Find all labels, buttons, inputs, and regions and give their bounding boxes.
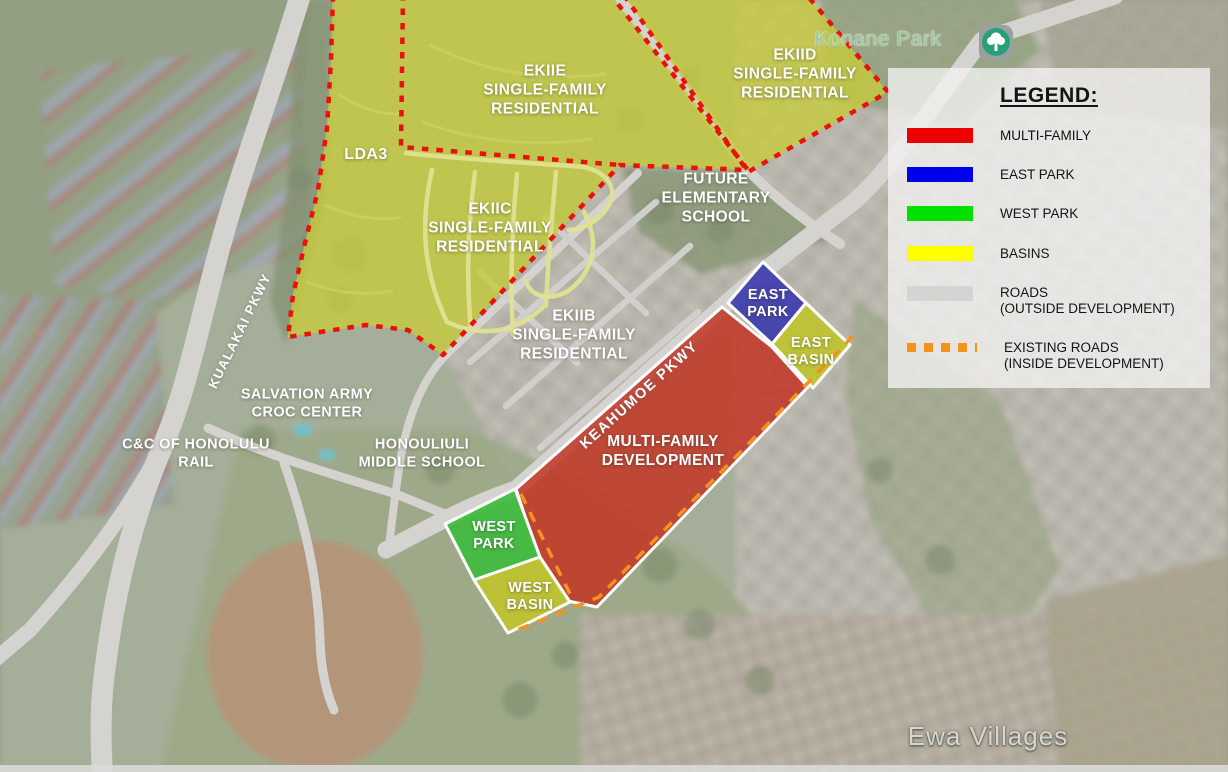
konane-park-icon: [979, 25, 1013, 61]
legend-row-east-park: EAST PARK: [907, 167, 1210, 183]
existing-roads-dashed-swatch: [907, 343, 977, 352]
legend-row-existing-roads: EXISTING ROADS (INSIDE DEVELOPMENT): [907, 340, 1210, 372]
bottom-edge-strip: [0, 765, 1228, 772]
legend-label: BASINS: [1000, 246, 1050, 262]
legend-label: ROADS (OUTSIDE DEVELOPMENT): [1000, 285, 1175, 317]
legend-row-multi-family: MULTI-FAMILY: [907, 128, 1210, 144]
legend-label: WEST PARK: [1000, 206, 1078, 222]
legend-row-west-park: WEST PARK: [907, 206, 1210, 222]
legend-label: MULTI-FAMILY: [1000, 128, 1091, 144]
development-plan-map: EKIIE SINGLE-FAMILY RESIDENTIAL LDA3 EKI…: [0, 0, 1228, 772]
legend-label: EXISTING ROADS (INSIDE DEVELOPMENT): [1004, 340, 1164, 372]
roads-swatch: [907, 286, 973, 301]
legend-title: LEGEND:: [888, 84, 1210, 108]
basins-swatch: [907, 246, 973, 261]
legend-label: EAST PARK: [1000, 167, 1075, 183]
legend-row-roads: ROADS (OUTSIDE DEVELOPMENT): [907, 285, 1210, 317]
east-park-swatch: [907, 167, 973, 182]
multi-family-swatch: [907, 128, 973, 143]
legend-row-basins: BASINS: [907, 246, 1210, 262]
legend-panel: LEGEND: MULTI-FAMILY EAST PARK WEST PARK…: [888, 68, 1210, 388]
west-park-swatch: [907, 206, 973, 221]
